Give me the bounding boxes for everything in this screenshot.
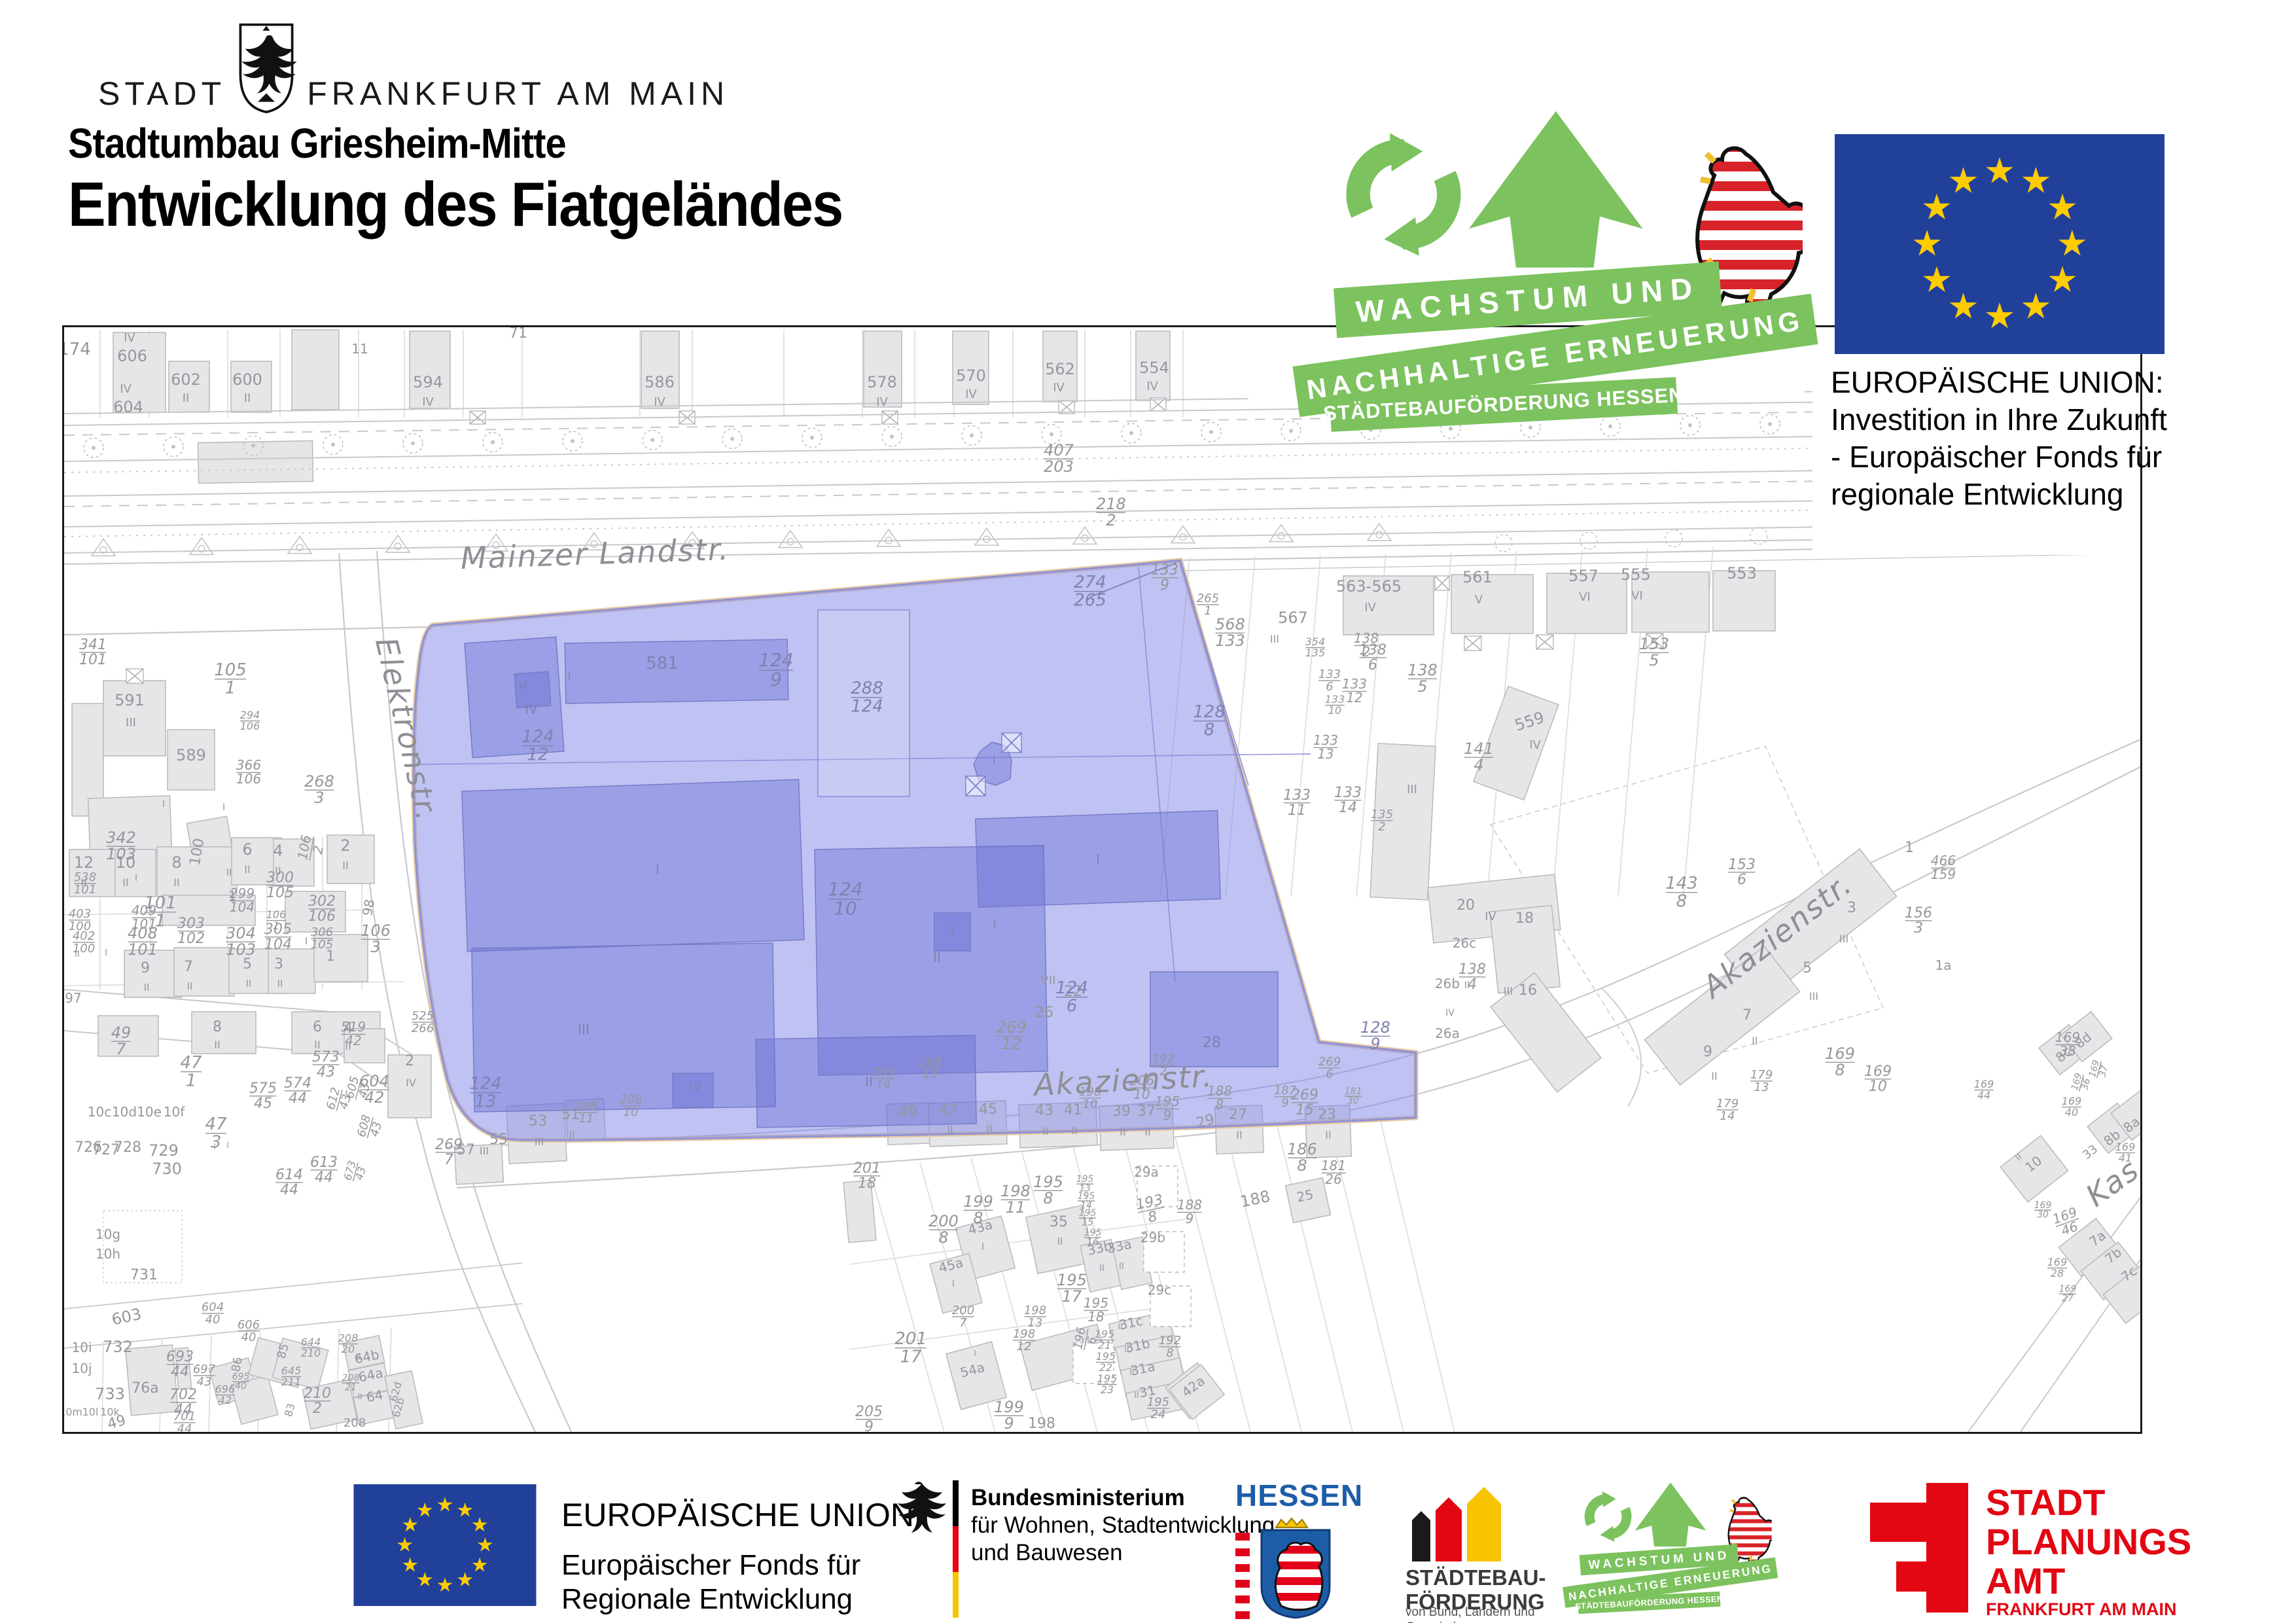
svg-text:300: 300 <box>266 870 294 886</box>
svg-text:29a: 29a <box>1134 1164 1159 1180</box>
svg-text:208: 208 <box>620 1093 642 1107</box>
svg-text:42: 42 <box>219 1394 232 1406</box>
svg-text:II: II <box>947 1124 953 1136</box>
svg-text:76a: 76a <box>132 1380 158 1397</box>
svg-text:342: 342 <box>106 829 136 847</box>
footer-spa-line2: PLANUNGS <box>1986 1522 2191 1561</box>
svg-text:III: III <box>1407 783 1417 796</box>
svg-text:37: 37 <box>2097 1064 2110 1078</box>
svg-text:218: 218 <box>1096 495 1126 513</box>
svg-text:602: 602 <box>171 370 201 389</box>
svg-text:174: 174 <box>64 340 91 359</box>
footer-spa-sub: FRANKFURT AM MAIN <box>1986 1599 2176 1620</box>
svg-text:II: II <box>1057 1236 1063 1247</box>
svg-text:35: 35 <box>1050 1214 1068 1230</box>
svg-text:702: 702 <box>169 1387 197 1403</box>
svg-text:141: 141 <box>1464 740 1494 758</box>
svg-text:10g: 10g <box>96 1226 120 1242</box>
svg-text:101: 101 <box>132 916 156 932</box>
svg-text:17: 17 <box>900 1347 922 1366</box>
svg-text:47: 47 <box>205 1115 227 1134</box>
svg-text:138: 138 <box>1458 961 1486 978</box>
svg-text:210: 210 <box>301 1347 321 1359</box>
svg-text:128: 128 <box>1193 702 1226 722</box>
svg-text:124: 124 <box>828 878 862 900</box>
svg-text:9: 9 <box>1163 1107 1172 1123</box>
svg-text:44: 44 <box>289 1090 307 1107</box>
svg-text:21: 21 <box>345 1383 357 1393</box>
svg-text:567: 567 <box>1278 609 1308 627</box>
svg-text:578: 578 <box>867 373 897 391</box>
svg-text:153: 153 <box>1639 635 1669 653</box>
svg-text:304: 304 <box>226 924 256 942</box>
svg-text:26b: 26b <box>1435 976 1460 991</box>
svg-text:169: 169 <box>1825 1044 1855 1063</box>
svg-text:8: 8 <box>171 853 181 872</box>
svg-text:133: 133 <box>1215 632 1245 650</box>
svg-text:13: 13 <box>474 1092 496 1111</box>
svg-text:42: 42 <box>345 1033 361 1048</box>
svg-text:198: 198 <box>1028 1416 1055 1432</box>
svg-text:II: II <box>244 863 250 876</box>
svg-text:133: 133 <box>1151 562 1178 579</box>
svg-text:IV: IV <box>876 395 888 409</box>
svg-text:III: III <box>1839 933 1848 945</box>
svg-text:133: 133 <box>1283 787 1311 804</box>
eu-text-line2: Investition in Ihre Zukunft <box>1831 401 2197 438</box>
svg-text:6: 6 <box>1326 1067 1333 1081</box>
svg-text:701: 701 <box>173 1410 196 1423</box>
svg-text:606: 606 <box>117 347 147 365</box>
svg-text:179: 179 <box>1750 1068 1773 1082</box>
svg-text:14: 14 <box>1720 1109 1735 1123</box>
svg-text:26: 26 <box>1035 1005 1053 1021</box>
svg-text:10c: 10c <box>88 1104 111 1120</box>
svg-text:IV: IV <box>406 1077 416 1089</box>
svg-text:12: 12 <box>1002 1035 1022 1053</box>
svg-text:7: 7 <box>184 959 193 975</box>
svg-text:10: 10 <box>1869 1079 1887 1095</box>
svg-text:203: 203 <box>1044 457 1074 476</box>
svg-text:18: 18 <box>1087 1309 1104 1325</box>
svg-text:135: 135 <box>1371 808 1393 821</box>
svg-text:II: II <box>948 923 954 935</box>
svg-text:8: 8 <box>1043 1189 1053 1207</box>
svg-text:3: 3 <box>1847 900 1856 916</box>
svg-text:6: 6 <box>1737 872 1746 888</box>
svg-text:179: 179 <box>1716 1097 1739 1111</box>
svg-text:11: 11 <box>351 341 368 357</box>
svg-text:I: I <box>305 936 308 947</box>
svg-text:135: 135 <box>1305 647 1326 659</box>
svg-text:40: 40 <box>205 1313 221 1327</box>
svg-text:II: II <box>1144 1126 1150 1138</box>
svg-text:I: I <box>981 1242 984 1253</box>
svg-text:I: I <box>226 1141 229 1150</box>
svg-text:22: 22 <box>1099 1361 1112 1374</box>
svg-text:600: 600 <box>232 370 262 389</box>
svg-text:198: 198 <box>1013 1327 1035 1341</box>
svg-text:9: 9 <box>141 960 150 976</box>
svg-text:3: 3 <box>211 1132 222 1152</box>
svg-text:10m: 10m <box>64 1406 82 1418</box>
svg-text:101: 101 <box>128 940 158 959</box>
hessen-arms-icon <box>1235 1514 1340 1619</box>
svg-text:728: 728 <box>114 1139 141 1156</box>
svg-text:I: I <box>135 873 137 883</box>
svg-text:8: 8 <box>213 1019 222 1035</box>
footer-bund-text: Bundesministerium für Wohnen, Stadtentwi… <box>971 1484 1275 1567</box>
svg-text:44: 44 <box>177 1422 192 1432</box>
svg-text:266: 266 <box>412 1022 434 1035</box>
svg-text:557: 557 <box>1568 567 1598 585</box>
svg-text:102: 102 <box>177 931 205 947</box>
svg-text:15: 15 <box>1082 1218 1093 1228</box>
frankfurt-logo: STADT FRANKFURT AM MAIN <box>98 22 729 114</box>
svg-text:729: 729 <box>149 1141 179 1160</box>
svg-text:2: 2 <box>309 844 327 855</box>
svg-text:II: II <box>277 978 283 990</box>
svg-text:606: 606 <box>238 1318 260 1332</box>
footer-staedtebau-line1: STÄDTEBAU- <box>1405 1565 1545 1590</box>
svg-text:2: 2 <box>1378 820 1385 834</box>
svg-text:II: II <box>75 950 80 959</box>
svg-text:VI: VI <box>1579 590 1591 604</box>
svg-text:II: II <box>1325 1129 1331 1141</box>
svg-text:II: II <box>1752 1035 1757 1047</box>
svg-text:341: 341 <box>79 637 107 653</box>
svg-text:VI: VI <box>1631 589 1643 603</box>
svg-text:II: II <box>933 950 941 965</box>
svg-text:732: 732 <box>103 1338 133 1356</box>
svg-text:9: 9 <box>1281 1096 1288 1110</box>
svg-text:269: 269 <box>872 1065 894 1079</box>
svg-text:III: III <box>480 1145 489 1157</box>
svg-text:97: 97 <box>65 990 81 1006</box>
svg-text:8: 8 <box>1835 1061 1845 1079</box>
svg-text:I: I <box>148 901 150 911</box>
svg-text:II: II <box>226 868 232 878</box>
svg-text:II: II <box>246 978 252 990</box>
svg-text:II: II <box>1124 1345 1129 1354</box>
footer-bund-line3: und Bauwesen <box>971 1539 1275 1567</box>
map-canvas: 174IV606IV604602II600II11594IV71586IV578… <box>64 327 2140 1432</box>
svg-text:I: I <box>656 862 660 878</box>
svg-text:3: 3 <box>274 956 283 972</box>
svg-text:586: 586 <box>645 373 675 391</box>
svg-text:195: 195 <box>1084 1228 1102 1238</box>
svg-text:124: 124 <box>851 696 883 716</box>
eu-flag <box>1832 134 2167 354</box>
svg-text:195: 195 <box>1079 1208 1097 1219</box>
svg-text:29c: 29c <box>1148 1282 1171 1298</box>
svg-text:II: II <box>357 1392 362 1401</box>
svg-text:10j: 10j <box>71 1361 92 1376</box>
svg-text:10h: 10h <box>96 1246 120 1262</box>
hessen-stripe-bar <box>1235 1533 1250 1619</box>
svg-text:I: I <box>213 1142 216 1151</box>
svg-text:49: 49 <box>111 1024 132 1042</box>
staedtebaufoerderung-houses-icon <box>1407 1484 1515 1561</box>
eu-text-line1: EUROPÄISCHE UNION: <box>1831 364 2197 401</box>
svg-text:1: 1 <box>1204 604 1211 618</box>
svg-text:43: 43 <box>1035 1103 1053 1119</box>
svg-text:43: 43 <box>353 1166 368 1182</box>
svg-text:10f: 10f <box>164 1104 185 1120</box>
svg-text:10k: 10k <box>100 1406 120 1418</box>
svg-text:12: 12 <box>527 745 548 764</box>
svg-text:269: 269 <box>1318 1055 1341 1069</box>
svg-text:13: 13 <box>923 1067 938 1081</box>
svg-text:4: 4 <box>273 842 283 860</box>
svg-text:28: 28 <box>2051 1267 2064 1279</box>
svg-text:7: 7 <box>959 1316 967 1330</box>
svg-text:101: 101 <box>79 652 107 668</box>
svg-text:1: 1 <box>1905 840 1914 856</box>
svg-text:6: 6 <box>1067 996 1078 1016</box>
svg-text:195: 195 <box>1057 1271 1087 1289</box>
svg-text:III: III <box>1504 985 1513 997</box>
svg-text:305: 305 <box>264 921 292 938</box>
svg-text:IV: IV <box>689 1080 701 1094</box>
bundesadler-icon <box>887 1480 966 1619</box>
svg-text:555: 555 <box>1621 565 1651 584</box>
footer-bund-line2: für Wohnen, Stadtentwicklung <box>971 1512 1275 1539</box>
svg-text:4: 4 <box>1474 756 1483 774</box>
svg-text:II: II <box>986 1122 992 1135</box>
svg-text:II: II <box>1120 1126 1125 1138</box>
svg-text:III: III <box>126 716 136 730</box>
svg-text:133: 133 <box>1318 668 1341 681</box>
svg-text:306: 306 <box>311 925 333 939</box>
svg-text:302: 302 <box>308 893 336 910</box>
svg-text:613: 613 <box>310 1154 338 1171</box>
svg-text:697: 697 <box>193 1363 216 1376</box>
svg-text:9: 9 <box>1703 1044 1712 1060</box>
svg-text:106: 106 <box>236 771 261 787</box>
svg-text:538: 538 <box>74 870 96 884</box>
svg-text:2: 2 <box>1106 511 1116 529</box>
svg-text:269: 269 <box>1291 1087 1318 1103</box>
svg-text:11: 11 <box>1006 1198 1026 1217</box>
svg-text:6: 6 <box>1368 657 1377 673</box>
svg-text:II: II <box>1042 1125 1048 1137</box>
svg-text:18: 18 <box>1515 910 1534 927</box>
svg-text:II: II <box>1071 1124 1077 1137</box>
svg-text:18: 18 <box>858 1175 876 1192</box>
svg-text:198: 198 <box>1024 1304 1046 1317</box>
svg-text:9: 9 <box>1370 1035 1380 1053</box>
svg-text:591: 591 <box>115 691 145 709</box>
svg-text:24: 24 <box>1151 1408 1166 1421</box>
svg-text:12: 12 <box>1346 690 1362 705</box>
svg-text:568: 568 <box>1215 615 1245 633</box>
svg-text:I: I <box>222 802 225 813</box>
svg-text:106: 106 <box>240 720 260 732</box>
svg-text:104: 104 <box>264 936 292 953</box>
svg-text:27: 27 <box>1229 1107 1247 1123</box>
svg-text:7: 7 <box>116 1040 126 1058</box>
svg-text:181: 181 <box>1345 1086 1362 1097</box>
svg-text:IV: IV <box>1364 601 1376 615</box>
svg-text:IV: IV <box>1053 381 1065 395</box>
svg-text:573: 573 <box>312 1049 340 1065</box>
page-title: Entwicklung des Fiatgeländes <box>68 169 842 241</box>
svg-text:IV: IV <box>1445 1008 1455 1018</box>
frankfurt-logo-word1: STADT <box>98 77 226 114</box>
svg-text:III: III <box>1809 990 1818 1003</box>
svg-text:693: 693 <box>166 1349 194 1365</box>
svg-text:195: 195 <box>1076 1174 1094 1185</box>
svg-text:570: 570 <box>956 366 986 385</box>
svg-text:169: 169 <box>2059 1284 2077 1294</box>
svg-text:268: 268 <box>304 772 334 791</box>
svg-text:104: 104 <box>230 899 255 915</box>
svg-text:101: 101 <box>74 883 96 897</box>
svg-text:4: 4 <box>1468 976 1477 993</box>
svg-text:12: 12 <box>74 853 94 872</box>
svg-text:200: 200 <box>928 1212 959 1230</box>
svg-text:403: 403 <box>69 907 91 921</box>
svg-text:71: 71 <box>509 327 527 342</box>
svg-text:11: 11 <box>1288 802 1306 819</box>
svg-text:II: II <box>244 391 251 405</box>
svg-text:15: 15 <box>1296 1102 1314 1118</box>
svg-text:51: 51 <box>561 1107 580 1123</box>
svg-text:IV: IV <box>124 331 135 345</box>
svg-text:575: 575 <box>249 1080 277 1097</box>
svg-text:8: 8 <box>1204 720 1215 740</box>
svg-text:II: II <box>122 876 128 889</box>
svg-text:IV: IV <box>1529 738 1541 752</box>
svg-text:IV: IV <box>654 395 665 409</box>
svg-text:II: II <box>1236 1129 1242 1141</box>
svg-text:I: I <box>105 948 107 958</box>
svg-text:43: 43 <box>368 1120 385 1139</box>
svg-text:55: 55 <box>489 1132 508 1148</box>
svg-text:II: II <box>144 982 150 993</box>
svg-text:8: 8 <box>1166 1346 1173 1360</box>
svg-text:195: 195 <box>1078 1191 1095 1202</box>
svg-text:106: 106 <box>308 908 336 925</box>
svg-text:2: 2 <box>313 1400 322 1417</box>
svg-text:156: 156 <box>1905 905 1932 921</box>
svg-text:20: 20 <box>1457 897 1475 914</box>
svg-text:205: 205 <box>855 1404 883 1420</box>
svg-text:II: II <box>569 1129 574 1141</box>
svg-text:133: 133 <box>1334 785 1362 801</box>
svg-text:57: 57 <box>457 1142 475 1158</box>
svg-text:I: I <box>974 1349 976 1358</box>
svg-text:98: 98 <box>359 898 378 917</box>
footer-bund-line1: Bundesministerium <box>971 1484 1275 1512</box>
svg-text:211: 211 <box>281 1376 302 1388</box>
svg-text:49: 49 <box>899 1104 917 1120</box>
svg-text:23: 23 <box>1101 1383 1114 1396</box>
svg-text:16: 16 <box>1519 982 1537 999</box>
svg-text:402: 402 <box>73 929 95 943</box>
svg-text:8: 8 <box>1297 1156 1307 1175</box>
svg-text:13: 13 <box>1317 746 1333 762</box>
svg-text:5: 5 <box>1417 677 1427 696</box>
svg-text:561: 561 <box>1462 568 1492 586</box>
svg-text:604: 604 <box>202 1300 224 1314</box>
svg-text:37: 37 <box>1137 1103 1156 1120</box>
svg-text:730: 730 <box>152 1160 182 1178</box>
svg-text:II: II <box>356 1353 361 1362</box>
svg-text:9: 9 <box>770 668 782 690</box>
svg-text:5: 5 <box>243 956 252 972</box>
svg-text:Mainzer Landstr.: Mainzer Landstr. <box>460 531 730 576</box>
svg-text:159: 159 <box>1931 866 1956 882</box>
svg-text:II: II <box>1119 1262 1124 1272</box>
svg-text:6: 6 <box>242 840 252 859</box>
svg-text:II: II <box>214 1039 220 1051</box>
svg-text:195: 195 <box>1033 1173 1063 1191</box>
svg-text:86: 86 <box>229 1356 245 1373</box>
footer-eu-subtitle: Europäischer Fonds für Regionale Entwick… <box>561 1548 860 1616</box>
footer-eu-sub2: Regionale Entwicklung <box>561 1582 860 1616</box>
svg-text:208: 208 <box>342 1373 360 1383</box>
svg-text:269: 269 <box>919 1055 942 1069</box>
frankfurt-eagle-shield-icon <box>236 22 296 114</box>
svg-text:27: 27 <box>2062 1294 2074 1304</box>
svg-text:47: 47 <box>940 1103 958 1119</box>
svg-text:IV: IV <box>422 395 434 409</box>
svg-text:II: II <box>1711 1070 1717 1082</box>
svg-text:589: 589 <box>176 746 206 764</box>
svg-text:44: 44 <box>1977 1089 1990 1101</box>
svg-text:5: 5 <box>1803 960 1812 976</box>
svg-text:2: 2 <box>405 1053 414 1069</box>
svg-text:9: 9 <box>1004 1414 1014 1432</box>
svg-text:7: 7 <box>444 1152 453 1168</box>
svg-text:28: 28 <box>1203 1035 1221 1051</box>
svg-text:41: 41 <box>1064 1102 1082 1118</box>
svg-text:16: 16 <box>1087 1238 1099 1248</box>
svg-text:124: 124 <box>758 649 793 671</box>
svg-text:192: 192 <box>1159 1334 1181 1347</box>
svg-text:1a: 1a <box>1935 957 1952 973</box>
svg-text:53: 53 <box>529 1113 547 1130</box>
growth-arrow-icon <box>1446 106 1655 270</box>
svg-text:12: 12 <box>1017 1340 1032 1353</box>
svg-text:47: 47 <box>180 1053 202 1073</box>
svg-text:44: 44 <box>280 1182 298 1198</box>
svg-text:169: 169 <box>1864 1063 1892 1080</box>
svg-text:186: 186 <box>1287 1140 1317 1158</box>
svg-text:269: 269 <box>997 1018 1027 1037</box>
svg-text:II: II <box>173 876 179 889</box>
svg-text:II: II <box>1129 1368 1134 1377</box>
svg-text:IV: IV <box>1485 910 1496 923</box>
svg-text:IV: IV <box>525 701 538 717</box>
svg-text:44: 44 <box>171 1364 189 1380</box>
svg-text:105: 105 <box>214 660 247 680</box>
svg-text:200: 200 <box>952 1304 974 1317</box>
svg-text:199: 199 <box>994 1398 1024 1416</box>
svg-text:14: 14 <box>1339 800 1357 816</box>
svg-text:10e: 10e <box>137 1104 162 1120</box>
svg-text:III: III <box>578 1022 590 1037</box>
svg-text:1: 1 <box>186 1071 197 1090</box>
svg-text:614: 614 <box>275 1167 303 1183</box>
svg-text:604: 604 <box>113 398 143 416</box>
svg-text:594: 594 <box>413 373 443 391</box>
page: 174IV606IV604602II600II11594IV71586IV578… <box>0 0 2296 1623</box>
svg-text:188: 188 <box>1239 1187 1272 1211</box>
svg-text:3: 3 <box>1914 920 1923 936</box>
